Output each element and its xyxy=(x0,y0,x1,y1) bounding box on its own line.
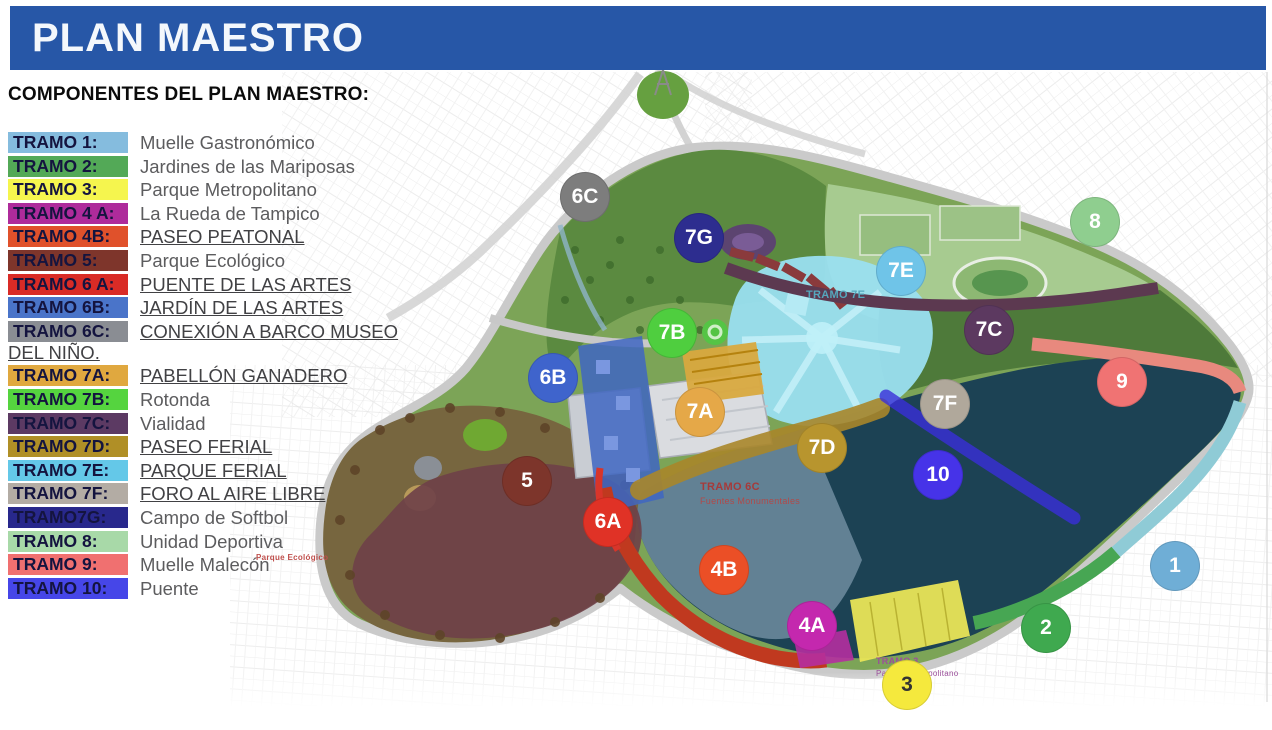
legend-chip: TRAMO 2: xyxy=(8,156,128,177)
map-annotation-tramo-6c: TRAMO 6C xyxy=(700,481,760,493)
legend-label: Campo de Softbol xyxy=(128,507,288,528)
marker-10[interactable]: 10 xyxy=(913,450,963,500)
legend-item-tramo-7e: TRAMO 7E:PARQUE FERIAL xyxy=(8,460,408,481)
marker-6a[interactable]: 6A xyxy=(583,497,633,547)
legend-label: Rotonda xyxy=(128,389,210,410)
legend-chip: TRAMO 1: xyxy=(8,132,128,153)
legend-label: PASEO FERIAL xyxy=(128,436,272,457)
legend-label: FORO AL AIRE LIBRE xyxy=(128,483,325,504)
legend-item-tramo-7a: TRAMO 7A:PABELLÓN GANADERO xyxy=(8,365,408,386)
legend-label: Unidad Deportiva xyxy=(128,531,283,552)
legend-item-tramo-7b: TRAMO 7B:Rotonda xyxy=(8,389,408,410)
legend-chip: TRAMO 7F: xyxy=(8,483,128,504)
legend-item-tramo-9: TRAMO 9:Muelle Malecón xyxy=(8,554,408,575)
legend-label: JARDÍN DE LAS ARTES xyxy=(128,297,343,318)
marker-7b[interactable]: 7B xyxy=(647,308,697,358)
legend-item-tramo-8: TRAMO 8:Unidad Deportiva xyxy=(8,531,408,552)
legend-chip: TRAMO7G: xyxy=(8,507,128,528)
legend-item-tramo-3: TRAMO 3:Parque Metropolitano xyxy=(8,179,408,200)
marker-7f[interactable]: 7F xyxy=(920,379,970,429)
legend-chip: TRAMO 6C: xyxy=(8,321,128,342)
marker-9[interactable]: 9 xyxy=(1097,357,1147,407)
marker-6b[interactable]: 6B xyxy=(528,353,578,403)
marker-2[interactable]: 2 xyxy=(1021,603,1071,653)
legend-chip: TRAMO 9: xyxy=(8,554,128,575)
legend-label: PASEO PEATONAL xyxy=(128,226,305,247)
legend-label: Muelle Malecón xyxy=(128,554,270,575)
legend-item-tramo-6c: TRAMO 6C:CONEXIÓN A BARCO MUSEO DEL NIÑO… xyxy=(8,321,408,363)
marker-8[interactable]: 8 xyxy=(1070,197,1120,247)
legend-item-tramo-6b: TRAMO 6B:JARDÍN DE LAS ARTES xyxy=(8,297,408,318)
legend-label: Puente xyxy=(128,578,199,599)
legend-label: Jardines de las Mariposas xyxy=(128,156,355,177)
legend-label: Muelle Gastronómico xyxy=(128,132,315,153)
legend-item-tramo-5: TRAMO 5:Parque Ecológico xyxy=(8,250,408,271)
legend-list: TRAMO 1:Muelle Gastronómico TRAMO 2:Jard… xyxy=(8,132,408,599)
legend-chip: TRAMO 7C: xyxy=(8,413,128,434)
legend-chip: TRAMO 4B: xyxy=(8,226,128,247)
legend-label: Parque Metropolitano xyxy=(128,179,317,200)
marker-4b[interactable]: 4B xyxy=(699,545,749,595)
legend-item-tramo-4a: TRAMO 4 A:La Rueda de Tampico xyxy=(8,203,408,224)
marker-7c[interactable]: 7C xyxy=(964,305,1014,355)
legend-item-tramo-7f: TRAMO 7F:FORO AL AIRE LIBRE xyxy=(8,483,408,504)
legend-label: Vialidad xyxy=(128,413,206,434)
legend-item-tramo-4b: TRAMO 4B:PASEO PEATONAL xyxy=(8,226,408,247)
marker-5[interactable]: 5 xyxy=(502,456,552,506)
map-annotation-fuentes: Fuentes Monumentales xyxy=(700,496,800,506)
legend-item-tramo-7c: TRAMO 7C:Vialidad xyxy=(8,413,408,434)
legend-item-tramo-1: TRAMO 1:Muelle Gastronómico xyxy=(8,132,408,153)
legend-item-tramo-10: TRAMO 10:Puente xyxy=(8,578,408,599)
page-title: PLAN MAESTRO xyxy=(32,16,364,61)
marker-7g[interactable]: 7G xyxy=(674,213,724,263)
legend-chip: TRAMO 7E: xyxy=(8,460,128,481)
marker-1[interactable]: 1 xyxy=(1150,541,1200,591)
plan-maestro-page: PLAN MAESTRO COMPONENTES DEL PLAN MAESTR… xyxy=(0,0,1272,730)
legend-label: La Rueda de Tampico xyxy=(128,203,320,224)
title-bar: PLAN MAESTRO xyxy=(10,6,1266,70)
marker-7d[interactable]: 7D xyxy=(797,423,847,473)
legend-panel: COMPONENTES DEL PLAN MAESTRO: TRAMO 1:Mu… xyxy=(8,84,408,601)
legend-chip: TRAMO 4 A: xyxy=(8,203,128,224)
legend-chip: TRAMO 7D: xyxy=(8,436,128,457)
legend-chip: TRAMO 7A: xyxy=(8,365,128,386)
legend-item-tramo-2: TRAMO 2:Jardines de las Mariposas xyxy=(8,156,408,177)
legend-chip: TRAMO 3: xyxy=(8,179,128,200)
legend-chip: TRAMO 10: xyxy=(8,578,128,599)
legend-heading: COMPONENTES DEL PLAN MAESTRO: xyxy=(8,84,408,106)
legend-chip: TRAMO 7B: xyxy=(8,389,128,410)
legend-label: PABELLÓN GANADERO xyxy=(128,365,347,386)
marker-7a[interactable]: 7A xyxy=(675,387,725,437)
marker-7e[interactable]: 7E xyxy=(876,246,926,296)
legend-chip: TRAMO 5: xyxy=(8,250,128,271)
legend-item-tramo-7g: TRAMO7G:Campo de Softbol xyxy=(8,507,408,528)
legend-chip: TRAMO 6 A: xyxy=(8,274,128,295)
marker-3[interactable]: 3 xyxy=(882,660,932,710)
legend-item-tramo-7d: TRAMO 7D:PASEO FERIAL xyxy=(8,436,408,457)
legend-label: Parque Ecológico xyxy=(128,250,285,271)
marker-4a[interactable]: 4A xyxy=(787,601,837,651)
legend-chip: TRAMO 6B: xyxy=(8,297,128,318)
legend-chip: TRAMO 8: xyxy=(8,531,128,552)
rotonda-glyph xyxy=(702,319,728,345)
legend-label: PARQUE FERIAL xyxy=(128,460,287,481)
marker-6c[interactable]: 6C xyxy=(560,172,610,222)
legend-label: PUENTE DE LAS ARTES xyxy=(128,274,351,295)
legend-item-tramo-6a: TRAMO 6 A:PUENTE DE LAS ARTES xyxy=(8,274,408,295)
map-annotation-tramo-7e: TRAMO 7E xyxy=(806,289,865,301)
